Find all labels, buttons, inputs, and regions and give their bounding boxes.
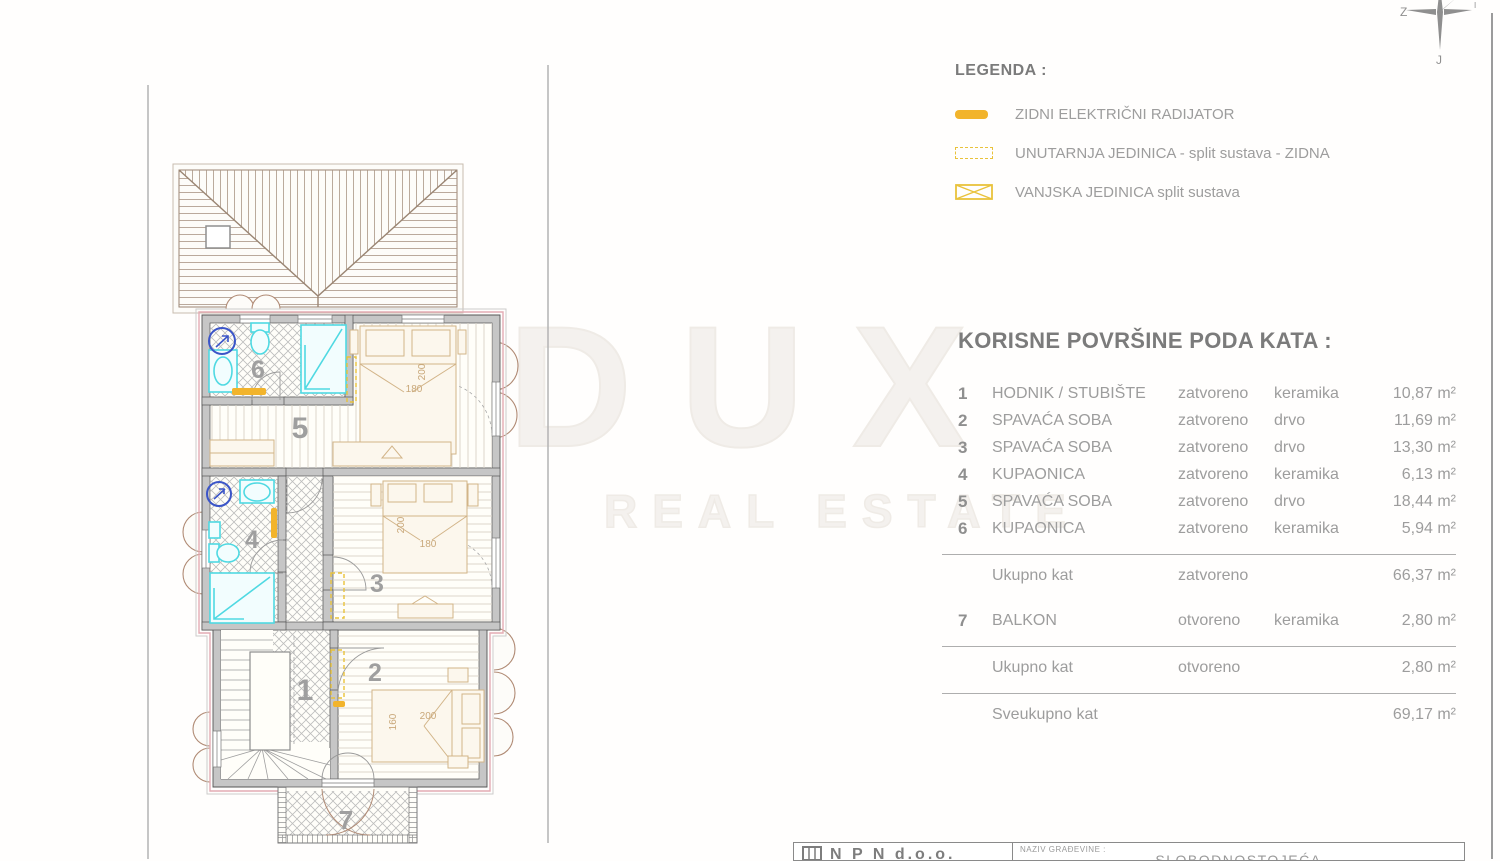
total-row: Sveukupno kat 69,17 m² <box>942 694 1456 728</box>
room-label-4: 4 <box>245 526 259 554</box>
table-row: 4 KUPAONICA zatvoreno keramika 6,13 m² <box>942 461 1456 488</box>
svg-text:200: 200 <box>396 516 407 533</box>
room-label-3: 3 <box>370 570 384 598</box>
room-label-6: 6 <box>251 356 265 384</box>
legend-item-outdoor-unit: VANJSKA JEDINICA split sustava <box>955 184 1330 200</box>
building-name-cell: NAZIV GRAĐEVINE : SLOBODNOSTOJEĆA <box>1012 843 1464 860</box>
subtotal-closed-row: Ukupno kat zatvoreno 66,37 m² <box>942 555 1456 589</box>
svg-text:200: 200 <box>417 363 428 380</box>
svg-text:200: 200 <box>420 711 437 722</box>
building-name-value: SLOBODNOSTOJEĆA <box>1013 852 1464 861</box>
legend-item-radiator: ZIDNI ELEKTRIČNI RADIJATOR <box>955 106 1330 122</box>
room-label-1: 1 <box>297 674 314 707</box>
areas-table: KORISNE POVRŠINE PODA KATA : 1 HODNIK / … <box>942 328 1456 728</box>
table-row: 2 SPAVAĆA SOBA zatvoreno drvo 11,69 m² <box>942 407 1456 434</box>
subtotal-open-row: Ukupno kat otvoreno 2,80 m² <box>942 647 1456 681</box>
table-row: 5 SPAVAĆA SOBA zatvoreno drvo 18,44 m² <box>942 488 1456 515</box>
compass-west: Z <box>1400 5 1407 19</box>
areas-table-title: KORISNE POVRŠINE PODA KATA : <box>958 328 1456 354</box>
legend-item-indoor-unit: UNUTARNJA JEDINICA - split sustava - ZID… <box>955 145 1330 161</box>
bidet-icon <box>209 522 220 538</box>
table-row: 6 KUPAONICA zatvoreno keramika 5,94 m² <box>942 515 1456 542</box>
company-logo: N P N d.o.o. <box>794 843 1012 860</box>
radiator-bar-icon <box>955 110 997 119</box>
room-label-2: 2 <box>368 659 382 687</box>
legend: LEGENDA : ZIDNI ELEKTRIČNI RADIJATOR UNU… <box>955 62 1330 223</box>
room-label-5: 5 <box>292 412 309 445</box>
compass-south: J <box>1436 53 1442 67</box>
roof-plan <box>173 164 463 313</box>
sheet-border-line <box>1491 13 1493 859</box>
chimney <box>206 226 230 248</box>
balcony-row: 7 BALKON otvoreno keramika 2,80 m² <box>942 607 1456 634</box>
title-block: N P N d.o.o. NAZIV GRAĐEVINE : SLOBODNOS… <box>793 842 1465 861</box>
crossed-rect-icon <box>955 184 997 200</box>
compass-east: I <box>1474 1 1476 10</box>
legend-title: LEGENDA : <box>955 62 1330 80</box>
svg-text:180: 180 <box>406 384 423 395</box>
dashed-rect-icon <box>955 147 997 159</box>
svg-text:180: 180 <box>420 539 437 550</box>
room-label-7: 7 <box>339 805 353 835</box>
table-row: 1 HODNIK / STUBIŠTE zatvoreno keramika 1… <box>942 380 1456 407</box>
floor-plan-drawing: 1 2 3 4 5 6 7 200 180 200 180 160 200 <box>0 0 600 859</box>
svg-text:160: 160 <box>388 713 399 730</box>
compass-rose: Z J I <box>1398 0 1493 72</box>
table-row: 3 SPAVAĆA SOBA zatvoreno drvo 13,30 m² <box>942 434 1456 461</box>
